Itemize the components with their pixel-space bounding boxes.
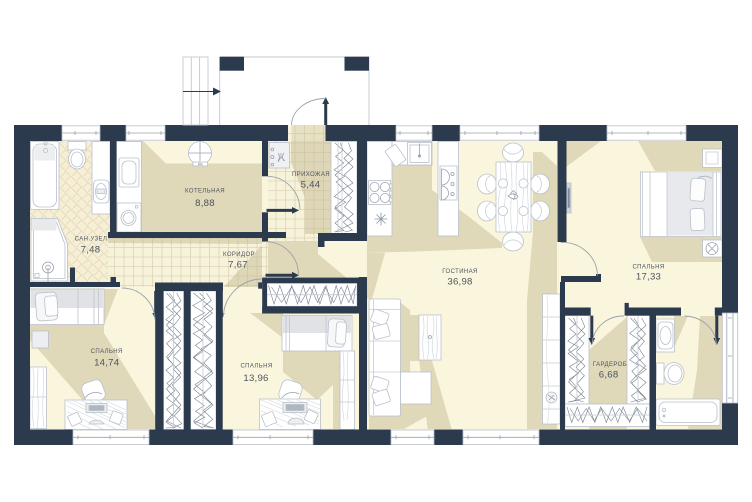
svg-text:КОТЕЛЬНАЯ: КОТЕЛЬНАЯ bbox=[185, 189, 225, 195]
svg-text:5,44: 5,44 bbox=[301, 180, 321, 191]
svg-text:ГАРДЕРОБ: ГАРДЕРОБ bbox=[593, 362, 627, 368]
svg-text:13,96: 13,96 bbox=[243, 373, 268, 384]
svg-text:8,88: 8,88 bbox=[195, 198, 215, 209]
svg-text:СПАЛЬНЯ: СПАЛЬНЯ bbox=[632, 265, 664, 271]
svg-text:6,68: 6,68 bbox=[599, 370, 619, 381]
svg-text:36,98: 36,98 bbox=[447, 277, 472, 288]
svg-text:7,67: 7,67 bbox=[228, 260, 248, 271]
svg-text:7,48: 7,48 bbox=[81, 245, 101, 256]
svg-text:14,74: 14,74 bbox=[94, 358, 120, 369]
svg-text:СПАЛЬНЯ: СПАЛЬНЯ bbox=[240, 364, 272, 370]
svg-text:САН.УЗЕЛ: САН.УЗЕЛ bbox=[75, 237, 108, 243]
svg-text:КОРИДОР: КОРИДОР bbox=[223, 252, 255, 258]
svg-text:СПАЛЬНЯ: СПАЛЬНЯ bbox=[91, 349, 123, 355]
svg-text:ПРИХОЖАЯ: ПРИХОЖАЯ bbox=[292, 172, 330, 178]
svg-text:17,33: 17,33 bbox=[636, 272, 661, 283]
svg-text:ГОСТИНАЯ: ГОСТИНАЯ bbox=[442, 269, 478, 275]
